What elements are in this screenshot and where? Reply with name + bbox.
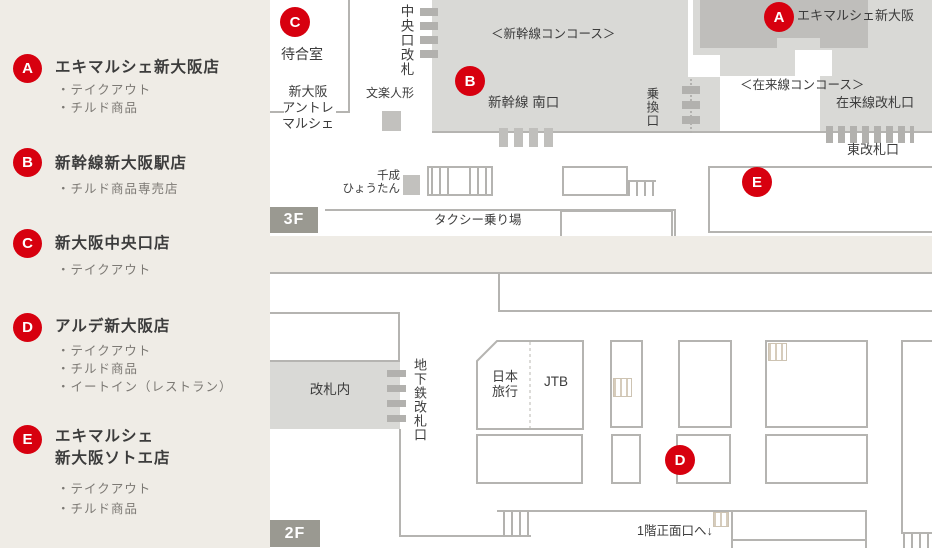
jtb-label: JTB xyxy=(530,374,582,390)
building-block xyxy=(765,340,868,428)
nippon-travel-label: 日本 旅行 xyxy=(480,369,530,399)
building-block xyxy=(678,340,732,428)
legend-title-e-line2: 新大阪ソトエ店 xyxy=(55,446,171,468)
stairs-icon xyxy=(503,512,531,537)
building-block xyxy=(731,510,867,548)
building-block-tall xyxy=(901,340,932,534)
map-marker-d: D xyxy=(665,445,695,475)
central-gate-label: 中央口改札 xyxy=(398,4,414,80)
ekimarche-shinosaka-label: エキマルシェ新大阪 xyxy=(797,9,914,24)
legend-feature: ・イートイン（レストラン） xyxy=(57,376,233,395)
sennari-hyotan-label: 千成 ひょうたん xyxy=(340,170,400,196)
taxi-stand-label: タクシー乗り場 xyxy=(434,213,522,227)
south-ticket-gates xyxy=(499,128,554,147)
map-marker-e: E xyxy=(742,167,772,197)
building-block xyxy=(560,210,673,236)
zairaisen-concourse-notch xyxy=(795,50,832,76)
legend-title-e: エキマルシェ xyxy=(55,424,154,446)
lower-wall xyxy=(399,429,401,537)
legend-marker-b: B xyxy=(13,148,42,177)
building-block xyxy=(611,434,641,484)
entre-marche-line1: 新大阪 xyxy=(276,84,340,100)
station-map-page: A エキマルシェ新大阪店 ・テイクアウト ・チルド商品 B 新幹線新大阪駅店 ・… xyxy=(0,0,932,548)
legend-feature: ・チルド商品 xyxy=(57,498,138,517)
subway-gate-label: 地下鉄改札口 xyxy=(411,358,426,450)
stairs-icon xyxy=(628,180,656,196)
legend-marker-c: C xyxy=(13,229,42,258)
ekimarche-store-area-tab xyxy=(700,38,777,48)
bunraku-label: 文楽人形 xyxy=(366,87,414,101)
central-ticket-gates xyxy=(420,8,438,64)
sotoe-building xyxy=(708,166,932,233)
legend-feature: ・チルド商品 xyxy=(57,358,138,377)
legend: A エキマルシェ新大阪店 ・テイクアウト ・チルド商品 B 新幹線新大阪駅店 ・… xyxy=(0,0,270,548)
legend-marker-d: D xyxy=(13,313,42,342)
legend-feature: ・テイクアウト xyxy=(57,478,151,497)
sennari-line1: 千成 xyxy=(340,170,400,183)
legend-feature: ・チルド商品専売店 xyxy=(57,178,179,197)
sennari-line2: ひょうたん xyxy=(340,183,400,196)
zairaisen-concourse-notch2 xyxy=(693,55,720,77)
building-block xyxy=(476,434,583,484)
entre-marche-label: 新大阪 アントレ マルシェ xyxy=(276,84,340,132)
building-block xyxy=(270,312,400,362)
shinkansen-south-gate-label: 新幹線 南口 xyxy=(488,95,559,111)
nippon-travel-line2: 旅行 xyxy=(480,384,530,399)
subway-ticket-gates xyxy=(387,370,406,424)
stairs-icon xyxy=(768,343,787,361)
legend-marker-a: A xyxy=(13,54,42,83)
stairs-icon xyxy=(469,168,489,194)
map-marker-a: A xyxy=(764,2,794,32)
east-ticket-gates xyxy=(826,126,914,143)
transfer-boundary-dots xyxy=(690,79,692,133)
corridor-wall xyxy=(498,310,932,312)
map-2f: 改札内 地下鉄改札口 日本 旅行 JTB D xyxy=(270,272,932,548)
inside-gate-label: 改札内 xyxy=(280,382,380,398)
legend-feature: ・テイクアウト xyxy=(57,340,151,359)
wall-line xyxy=(348,0,350,113)
legend-feature: ・テイクアウト xyxy=(57,79,151,98)
bunraku-object xyxy=(382,111,401,131)
legend-title-b: 新幹線新大阪駅店 xyxy=(55,151,187,173)
escalator-block xyxy=(427,166,493,196)
zairaisen-gate-label: 在来線改札口 xyxy=(836,96,914,111)
taxi-area-wall-right xyxy=(674,209,676,236)
stairs-icon xyxy=(431,168,451,194)
stairs-icon xyxy=(613,378,632,397)
map-3f: C 待合室 新大阪 アントレ マルシェ 中央口改札 B 新幹線 南口 ＜新幹線コ… xyxy=(270,0,932,236)
stairs-icon xyxy=(903,534,929,548)
building-block xyxy=(610,340,643,428)
ekimarche-store-area-tab2 xyxy=(820,38,868,48)
legend-title-a: エキマルシェ新大阪店 xyxy=(55,55,220,77)
nippon-travel-line1: 日本 xyxy=(480,369,530,384)
legend-title-c: 新大阪中央口店 xyxy=(55,231,171,253)
shinkansen-concourse-label: ＜新幹線コンコース＞ xyxy=(491,27,615,41)
corridor-wall xyxy=(498,274,500,312)
transfer-gate-label: 乗換口 xyxy=(644,87,658,129)
legend-title-d: アルデ新大阪店 xyxy=(55,314,170,336)
entre-marche-line2: アントレ xyxy=(276,100,340,116)
waiting-room-label: 待合室 xyxy=(274,46,330,62)
map-marker-b: B xyxy=(455,66,485,96)
floor-badge-2f: 2F xyxy=(270,520,320,547)
legend-marker-e: E xyxy=(13,425,42,454)
building-block xyxy=(765,434,868,484)
entre-marche-line3: マルシェ xyxy=(276,116,340,132)
to-1f-label: 1階正面口へ↓ xyxy=(637,524,713,538)
legend-feature: ・チルド商品 xyxy=(57,97,138,116)
sennari-object xyxy=(403,175,420,195)
inner-wall xyxy=(733,539,865,541)
floor-badge-3f: 3F xyxy=(270,207,318,233)
zairaisen-concourse-label: ＜在来線コンコース＞ xyxy=(740,78,864,92)
map-marker-c: C xyxy=(280,7,310,37)
stairs-icon xyxy=(713,512,729,527)
building-block xyxy=(562,166,628,196)
legend-feature: ・テイクアウト xyxy=(57,259,151,278)
east-gate-label: 東改札口 xyxy=(847,143,899,158)
